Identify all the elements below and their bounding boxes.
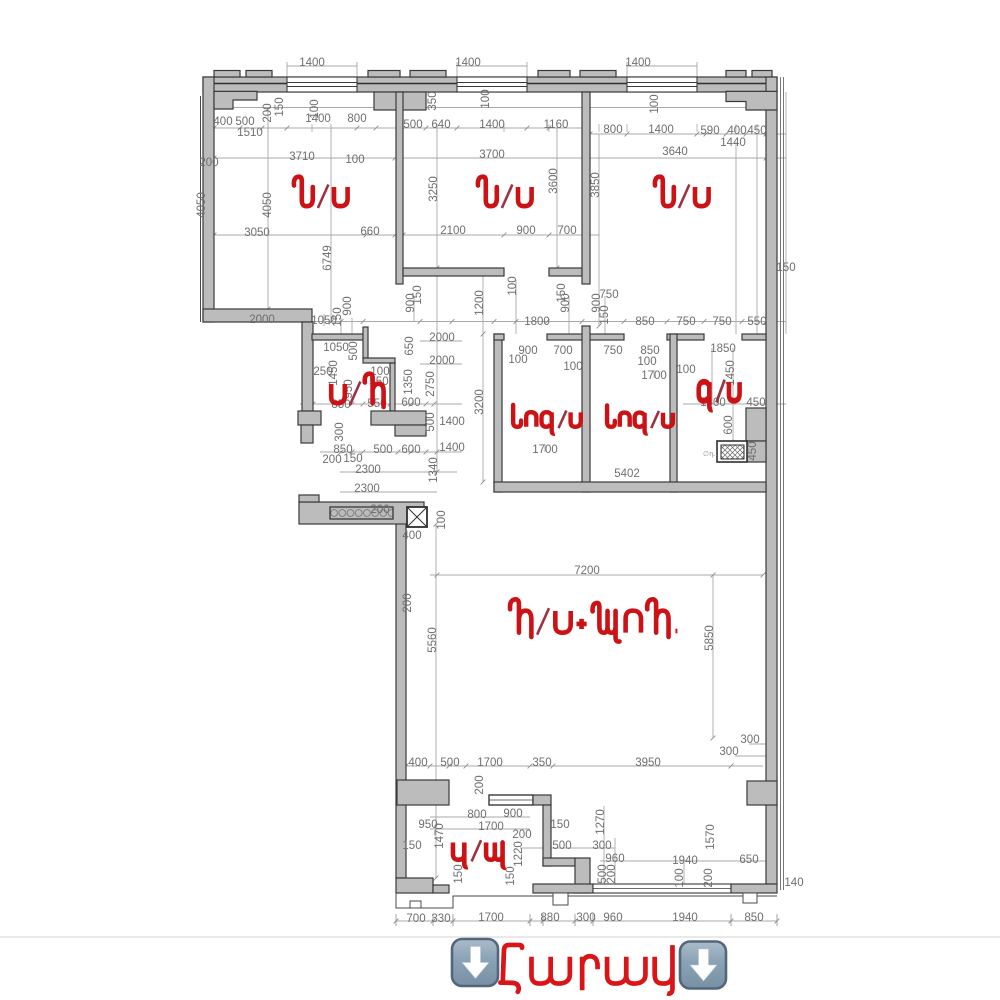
svg-text:350: 350 xyxy=(427,91,439,110)
svg-text:1940: 1940 xyxy=(672,912,698,924)
svg-text:300: 300 xyxy=(592,840,611,852)
svg-text:850: 850 xyxy=(635,316,654,328)
svg-text:2300: 2300 xyxy=(355,464,381,476)
svg-text:880: 880 xyxy=(540,912,559,924)
svg-text:1450: 1450 xyxy=(725,360,737,386)
svg-text:1270: 1270 xyxy=(595,809,607,835)
svg-text:200: 200 xyxy=(474,775,486,794)
svg-text:200: 200 xyxy=(402,593,414,612)
svg-text:3200: 3200 xyxy=(474,389,486,415)
svg-text:1850: 1850 xyxy=(710,343,736,355)
svg-text:600: 600 xyxy=(401,397,420,409)
svg-text:500: 500 xyxy=(373,444,392,456)
svg-text:500: 500 xyxy=(348,341,360,360)
svg-text:1510: 1510 xyxy=(237,127,263,139)
svg-text:500: 500 xyxy=(552,840,571,852)
svg-text:1200: 1200 xyxy=(474,290,486,316)
svg-text:1220: 1220 xyxy=(513,841,525,867)
svg-text:1700: 1700 xyxy=(477,757,503,769)
svg-text:550: 550 xyxy=(747,316,766,328)
svg-text:3710: 3710 xyxy=(289,151,315,163)
svg-text:500: 500 xyxy=(425,412,437,431)
svg-text:200: 200 xyxy=(703,868,715,887)
svg-text:5402: 5402 xyxy=(614,468,640,480)
svg-text:400: 400 xyxy=(408,757,427,769)
svg-text:200: 200 xyxy=(322,454,341,466)
svg-text:6749: 6749 xyxy=(322,245,334,271)
svg-text:450: 450 xyxy=(747,125,766,137)
svg-text:200: 200 xyxy=(606,864,618,883)
svg-text:200: 200 xyxy=(512,829,531,841)
svg-text:1400: 1400 xyxy=(479,119,505,131)
svg-text:150: 150 xyxy=(402,840,421,852)
svg-text:150: 150 xyxy=(599,305,611,324)
svg-text:1700: 1700 xyxy=(478,912,504,924)
svg-text:650: 650 xyxy=(404,336,416,355)
svg-text:300: 300 xyxy=(740,734,759,746)
svg-text:1400: 1400 xyxy=(299,57,325,69)
svg-text:1400: 1400 xyxy=(625,57,651,69)
svg-text:200: 200 xyxy=(262,103,274,122)
svg-text:800: 800 xyxy=(467,809,486,821)
svg-text:450: 450 xyxy=(747,441,759,460)
svg-text:1700: 1700 xyxy=(641,370,667,382)
svg-text:200: 200 xyxy=(370,504,389,516)
svg-text:100: 100 xyxy=(563,361,582,373)
svg-text:700: 700 xyxy=(406,913,425,925)
svg-text:1800: 1800 xyxy=(524,316,550,328)
svg-text:1400: 1400 xyxy=(439,416,465,428)
svg-text:∅դ..: ∅դ.. xyxy=(703,451,718,458)
svg-text:800: 800 xyxy=(603,124,622,136)
svg-text:3600: 3600 xyxy=(548,168,560,194)
svg-text:1450: 1450 xyxy=(328,360,340,386)
svg-text:800: 800 xyxy=(347,113,366,125)
svg-text:400: 400 xyxy=(402,530,421,542)
svg-text:100: 100 xyxy=(345,154,364,166)
svg-text:640: 640 xyxy=(431,119,450,131)
svg-text:600: 600 xyxy=(401,444,420,456)
svg-text:3700: 3700 xyxy=(479,149,505,161)
svg-text:500: 500 xyxy=(440,757,459,769)
svg-text:1940: 1940 xyxy=(672,855,698,867)
svg-text:960: 960 xyxy=(605,853,624,865)
svg-text:1570: 1570 xyxy=(705,824,717,850)
svg-text:590: 590 xyxy=(700,125,719,137)
svg-text:450: 450 xyxy=(746,397,765,409)
svg-text:100: 100 xyxy=(507,276,519,295)
svg-text:3640: 3640 xyxy=(662,146,688,158)
svg-text:150: 150 xyxy=(550,819,569,831)
svg-text:750: 750 xyxy=(712,316,731,328)
svg-text:140: 140 xyxy=(784,877,803,889)
svg-text:100: 100 xyxy=(649,94,661,113)
svg-text:300: 300 xyxy=(719,746,738,758)
svg-text:900: 900 xyxy=(503,808,522,820)
svg-text:350: 350 xyxy=(532,757,551,769)
svg-text:100: 100 xyxy=(508,354,527,366)
svg-text:150: 150 xyxy=(274,97,286,116)
svg-text:1050: 1050 xyxy=(323,342,349,354)
svg-text:150: 150 xyxy=(412,285,424,304)
svg-text:3950: 3950 xyxy=(635,757,661,769)
svg-text:100: 100 xyxy=(637,356,656,368)
svg-text:100: 100 xyxy=(480,89,492,108)
svg-text:2000: 2000 xyxy=(429,355,455,367)
svg-text:1400: 1400 xyxy=(455,57,481,69)
svg-text:960: 960 xyxy=(603,912,622,924)
svg-text:700: 700 xyxy=(553,345,572,357)
svg-text:1350: 1350 xyxy=(403,369,415,395)
svg-text:2300: 2300 xyxy=(354,483,380,495)
svg-text:650: 650 xyxy=(739,854,758,866)
svg-text:5850: 5850 xyxy=(704,625,716,651)
svg-text:1160: 1160 xyxy=(544,119,569,131)
svg-text:100: 100 xyxy=(309,99,321,118)
svg-text:1440: 1440 xyxy=(720,137,746,149)
svg-text:2000: 2000 xyxy=(249,314,275,326)
svg-text:1700: 1700 xyxy=(478,821,504,833)
svg-text:660: 660 xyxy=(360,226,379,238)
svg-text:3850: 3850 xyxy=(590,172,602,198)
svg-text:330: 330 xyxy=(431,913,450,925)
svg-text:300: 300 xyxy=(576,912,595,924)
svg-text:150: 150 xyxy=(332,307,344,326)
svg-text:400: 400 xyxy=(213,116,232,128)
svg-text:1400: 1400 xyxy=(648,124,674,136)
svg-text:2750: 2750 xyxy=(425,371,437,397)
svg-text:2100: 2100 xyxy=(440,225,466,237)
svg-text:750: 750 xyxy=(676,316,695,328)
svg-text:100: 100 xyxy=(676,364,695,376)
svg-text:4050: 4050 xyxy=(196,192,208,218)
svg-text:1470: 1470 xyxy=(434,823,446,849)
svg-text:3050: 3050 xyxy=(244,227,270,239)
svg-text:900: 900 xyxy=(516,225,535,237)
svg-text:4050: 4050 xyxy=(262,192,274,218)
svg-text:3250: 3250 xyxy=(428,176,440,202)
svg-text:1340: 1340 xyxy=(428,457,440,483)
svg-text:100: 100 xyxy=(436,510,448,529)
svg-text:1700: 1700 xyxy=(532,444,558,456)
svg-text:600: 600 xyxy=(723,415,735,434)
svg-text:1400: 1400 xyxy=(439,442,465,454)
svg-text:850: 850 xyxy=(744,912,763,924)
svg-text:2000: 2000 xyxy=(429,332,455,344)
svg-text:5560: 5560 xyxy=(427,627,439,653)
svg-text:400: 400 xyxy=(727,125,746,137)
svg-text:200: 200 xyxy=(199,157,218,169)
svg-text:500: 500 xyxy=(403,119,422,131)
svg-text:750: 750 xyxy=(603,345,622,357)
svg-text:150: 150 xyxy=(776,262,795,274)
svg-text:100: 100 xyxy=(674,868,686,887)
svg-text:300: 300 xyxy=(334,422,346,441)
svg-text:900: 900 xyxy=(560,293,572,312)
svg-text:7200: 7200 xyxy=(574,565,600,577)
svg-text:150: 150 xyxy=(505,866,517,885)
svg-text:700: 700 xyxy=(557,225,576,237)
